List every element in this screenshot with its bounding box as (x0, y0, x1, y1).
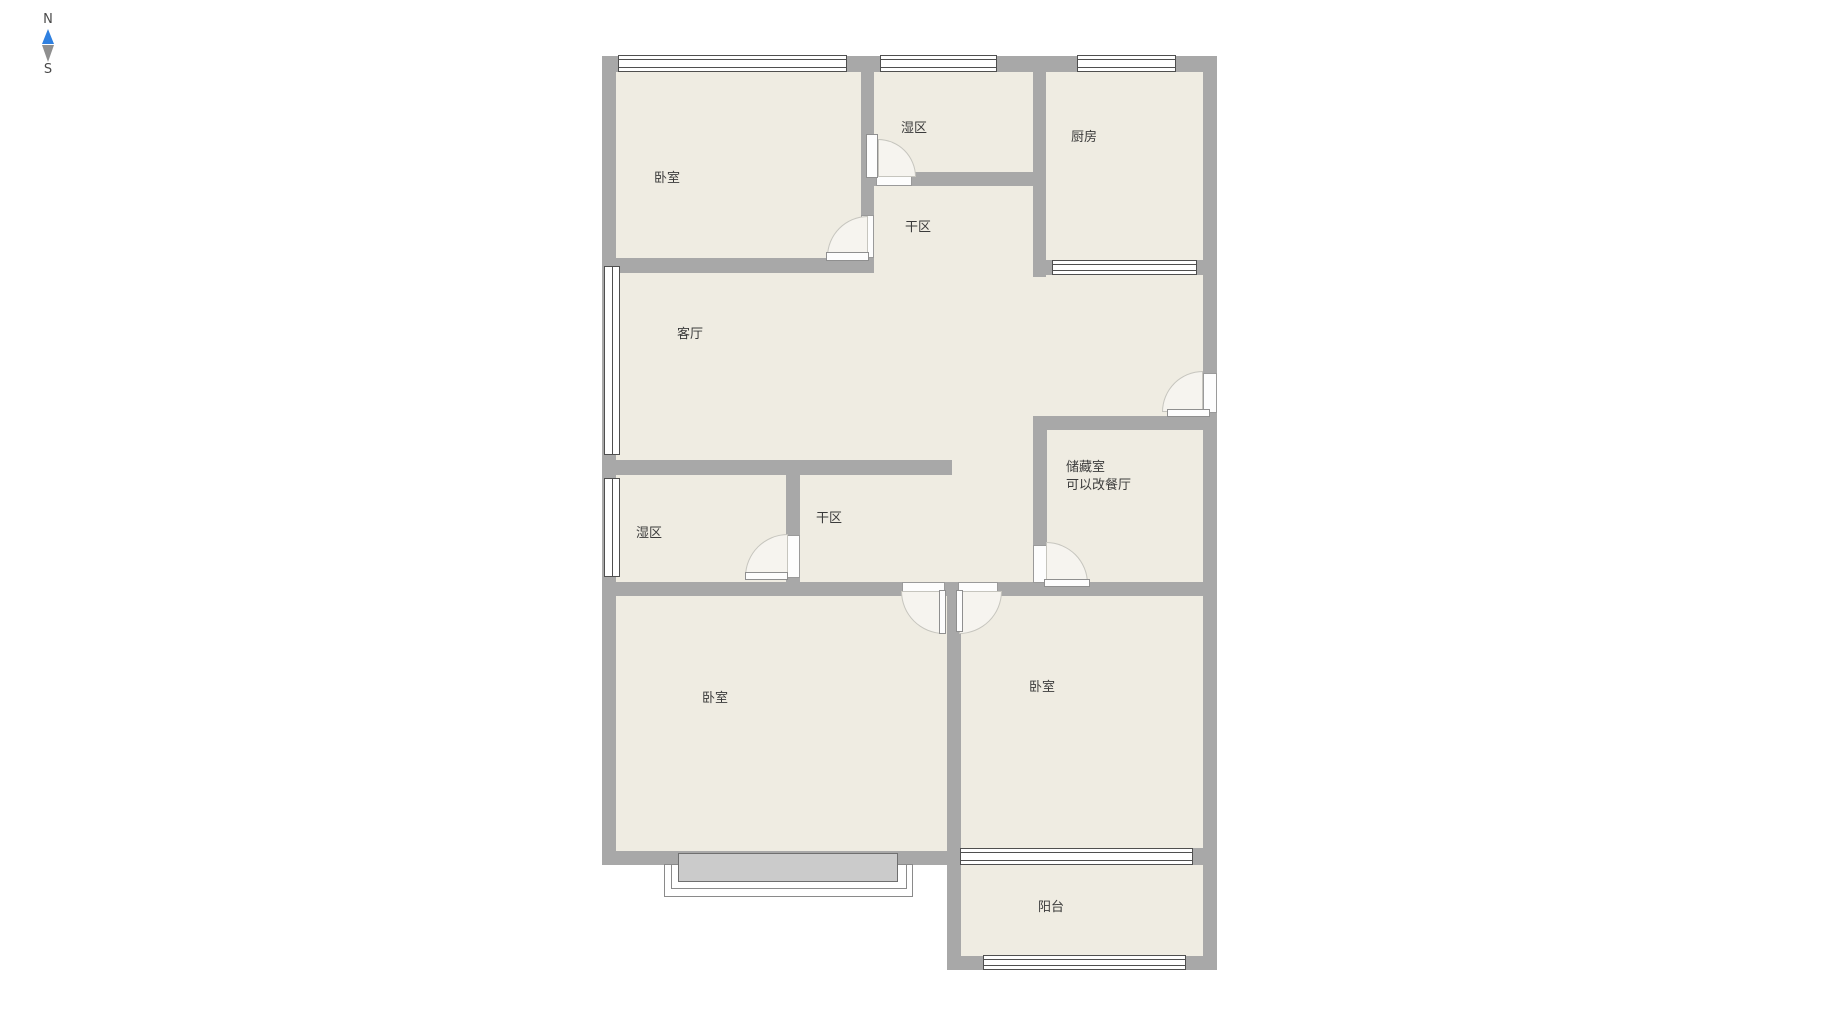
window-left-wet-mid (604, 478, 620, 577)
door-wet-top-leaf (866, 134, 878, 178)
wall-storage-top (1033, 416, 1203, 430)
room-label-kitchen: 厨房 (1071, 130, 1097, 146)
room-label-bedroom-top: 卧室 (654, 171, 680, 187)
wall-right (1203, 56, 1217, 970)
door-bedroom-left-leaf (939, 590, 946, 634)
window-kitchen-bottom (1052, 260, 1197, 275)
room-label-bedroom-left: 卧室 (702, 691, 728, 707)
room-label-storage-line2: 可以改餐厅 (1066, 478, 1131, 494)
compass: N S (34, 12, 62, 78)
window-balcony-bottom (983, 955, 1186, 970)
room-label-dry-top: 干区 (905, 220, 931, 236)
window-bedroom-balcony (960, 848, 1193, 865)
room-label-balcony: 阳台 (1038, 900, 1064, 916)
doorway-wet-mid (786, 535, 800, 578)
doorway-storage (1033, 545, 1047, 583)
door-bedroom-right-leaf (956, 590, 963, 632)
floor-plan: N S (0, 0, 1822, 1025)
window-top-kitchen (1077, 55, 1176, 72)
room-label-storage: 储藏室 可以改餐厅 (1066, 460, 1131, 494)
room-label-wet-mid: 湿区 (636, 526, 662, 542)
room-label-dry-mid: 干区 (816, 511, 842, 527)
room-label-storage-line1: 储藏室 (1066, 460, 1131, 476)
wall-bedroom-divider (947, 596, 961, 970)
wall-kitchen-left (1033, 72, 1046, 277)
window-top-wet (880, 55, 997, 72)
door-entrance-leaf (1167, 409, 1210, 417)
door-wet-mid-leaf (745, 572, 788, 580)
bay-window-slab (678, 853, 898, 882)
doorway-entrance (1203, 373, 1217, 413)
compass-south-label: S (34, 62, 62, 78)
window-top-bedroom (618, 55, 847, 72)
door-storage-leaf (1044, 579, 1090, 587)
room-label-wet-top: 湿区 (901, 121, 927, 137)
door-bedroom-top-leaf (826, 252, 869, 261)
compass-needle-south-icon (42, 45, 54, 62)
wall-living-bottom (602, 460, 952, 475)
room-label-living: 客厅 (677, 327, 703, 343)
room-label-bedroom-right: 卧室 (1029, 680, 1055, 696)
window-left-living (604, 266, 620, 455)
compass-needle-north-icon (42, 29, 54, 44)
compass-north-label: N (34, 12, 62, 28)
